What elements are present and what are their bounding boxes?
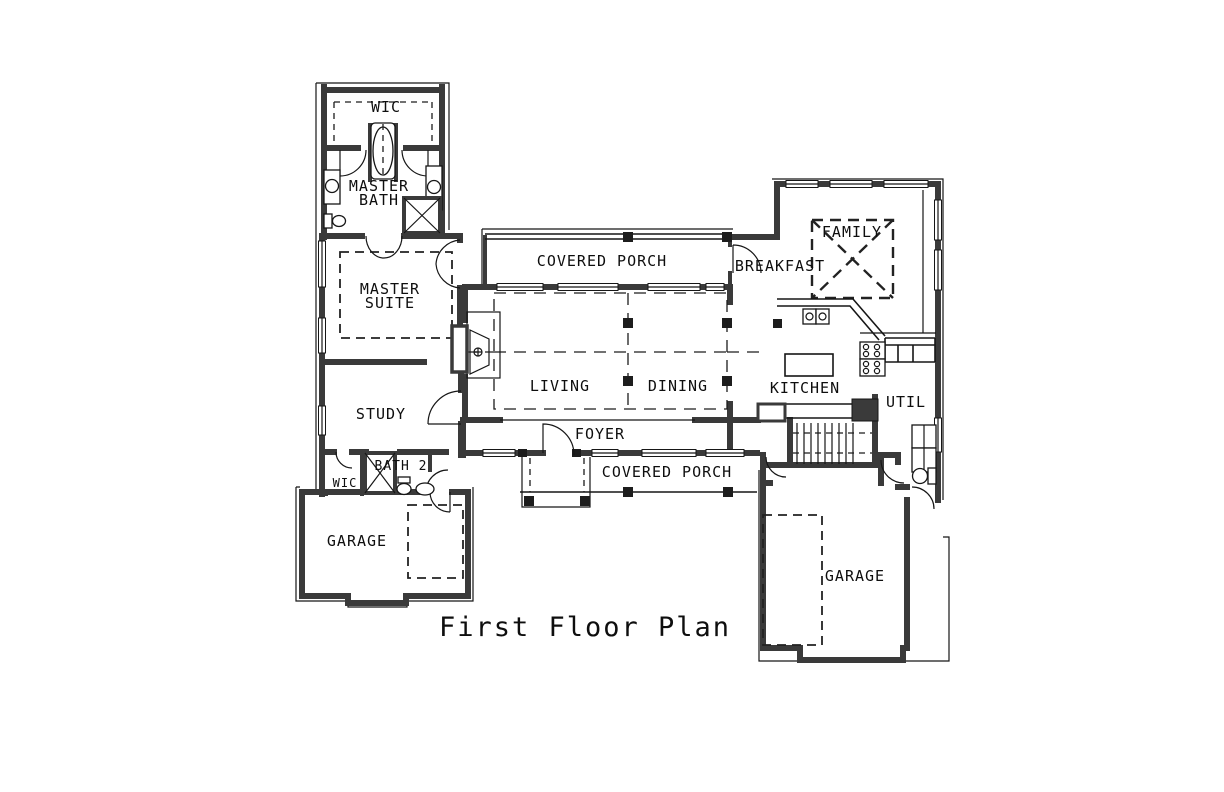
wall-living-dining [465,287,730,420]
master-tub [371,123,395,179]
label-bath2: BATH 2 [375,459,428,474]
label-covered-porch-top: COVERED PORCH [537,252,667,270]
window-left-wall [319,241,326,435]
door-powder [912,487,934,509]
door-study [428,391,461,424]
bath2-toilet [397,477,411,495]
drawing-title: First Floor Plan [439,612,731,643]
family-kitchen-lines [860,190,936,333]
window-living-north [497,284,724,291]
kitchen-bar [758,399,878,421]
garage-left-bay [408,505,463,578]
label-breakfast: BREAKFAST [735,257,825,275]
master-shower [404,198,440,233]
label-master-bath-2: BATH [359,191,399,209]
util-appliances [912,425,936,472]
label-master-suite-2: SUITE [365,294,415,312]
label-garage-left: GARAGE [327,532,387,550]
label-wic-top: WIC [371,98,401,116]
floor-plan-page: WIC MASTER BATH MASTER SUITE COVERED POR… [0,0,1224,792]
stairs [793,423,872,464]
label-dining: DINING [648,377,708,395]
door-wic-left [340,150,366,176]
kitchen-island [785,354,833,376]
entry-stoop-dashed [530,458,584,492]
porch-top-edge [485,234,730,239]
floor-plan-drawing: WIC MASTER BATH MASTER SUITE COVERED POR… [0,0,1224,792]
label-kitchen: KITCHEN [770,379,840,397]
label-covered-porch-bottom: COVERED PORCH [602,463,732,481]
label-foyer: FOYER [575,425,625,443]
kitchen-counter [777,299,935,362]
label-family: FAMILY [822,223,882,241]
window-family-north [786,181,928,188]
powder-toilet [913,468,937,484]
door-garage-left [430,492,450,512]
door-wic-right [402,150,428,176]
label-util: UTIL [886,393,926,411]
door-suite-entry [436,240,460,288]
label-study: STUDY [356,405,406,423]
kitchen-range [860,342,885,376]
label-living: LIVING [530,377,590,395]
master-vanity-left [324,170,340,204]
door-bath-to-suite [366,236,402,258]
master-toilet [324,214,346,228]
wall-garage-right [763,455,938,660]
label-garage-right: GARAGE [825,567,885,585]
bath2-sink [416,483,434,495]
label-wic-small: WIC [333,476,358,490]
garage-right-bay [763,515,822,645]
room-labels: WIC MASTER BATH MASTER SUITE COVERED POR… [327,98,926,585]
door-front-entry [543,424,574,455]
